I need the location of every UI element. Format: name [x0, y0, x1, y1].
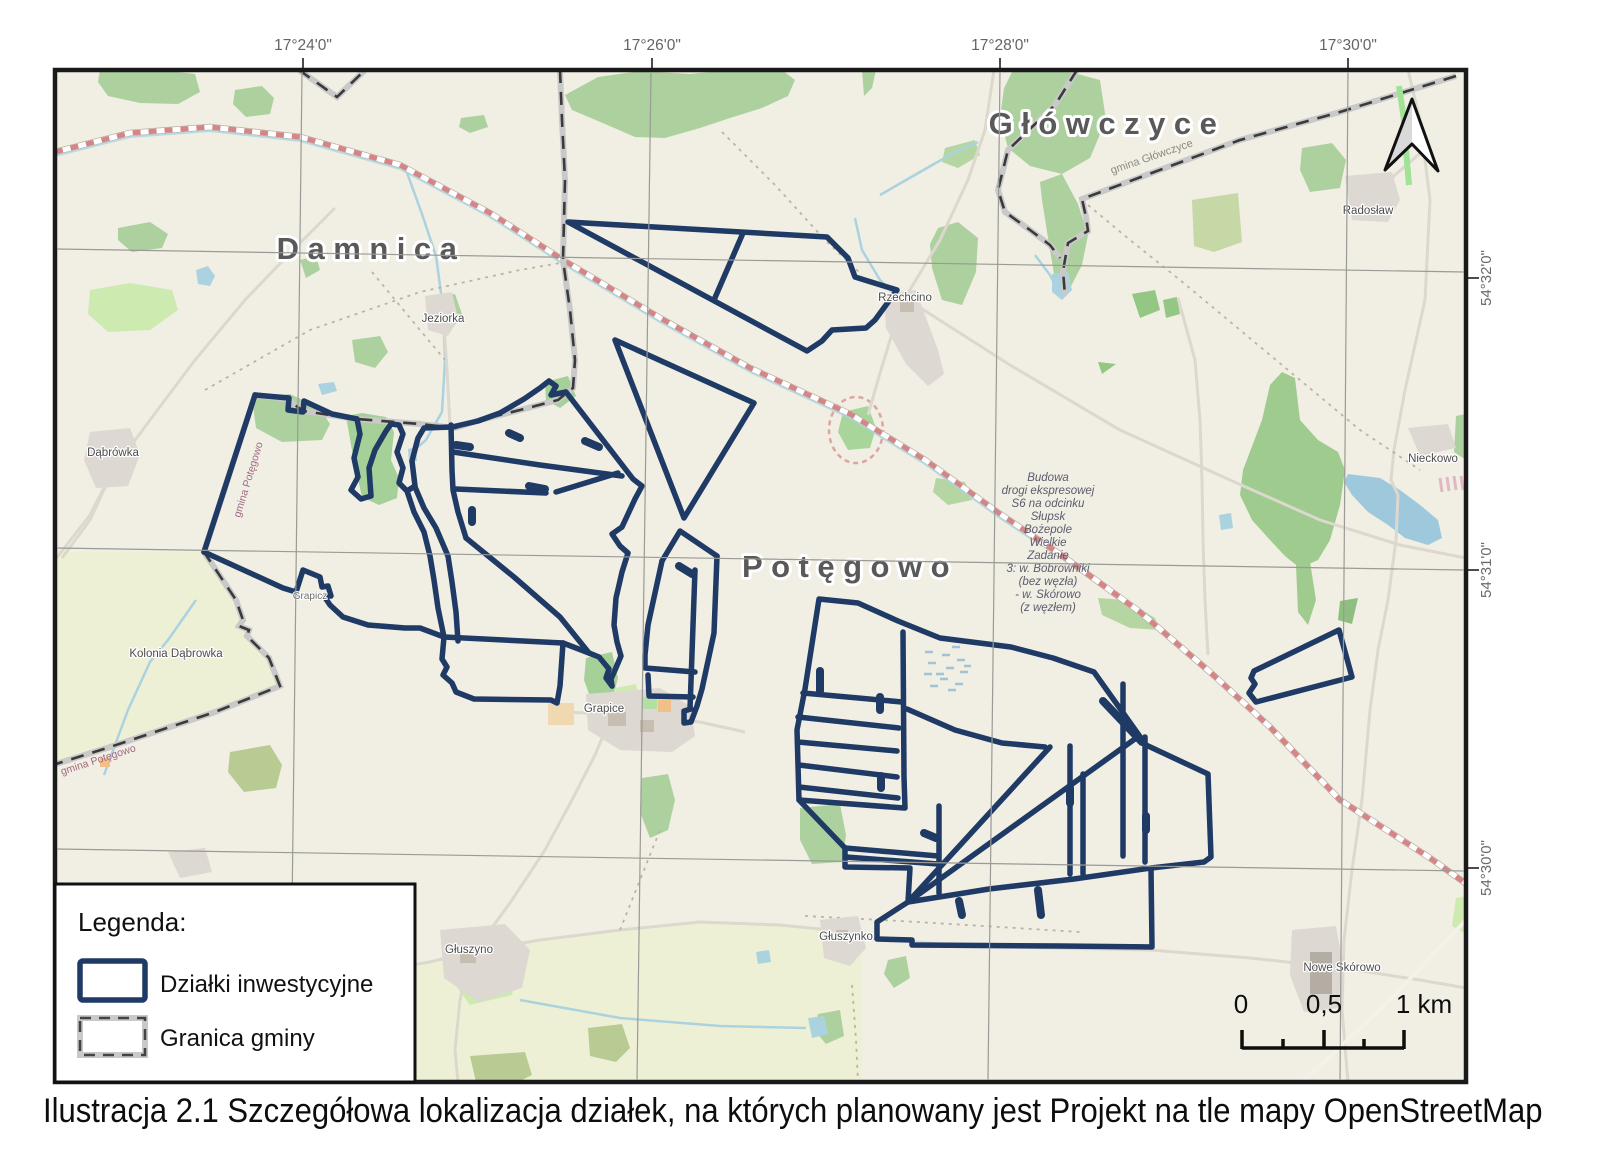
svg-text:Potęgowo: Potęgowo — [742, 549, 958, 584]
svg-text:3: w. Bobrowniki: 3: w. Bobrowniki — [1006, 563, 1090, 575]
svg-text:Nieckowo: Nieckowo — [1408, 453, 1458, 465]
svg-text:Głuszyno: Głuszyno — [445, 944, 493, 956]
svg-text:Budowa: Budowa — [1027, 472, 1069, 484]
svg-text:54°32'0": 54°32'0" — [1478, 250, 1495, 306]
svg-text:Kolonia Dąbrowka: Kolonia Dąbrowka — [129, 648, 223, 660]
svg-text:17°30'0": 17°30'0" — [1319, 37, 1377, 54]
svg-text:Zadanie: Zadanie — [1026, 550, 1069, 562]
svg-text:drogi ekspresowej: drogi ekspresowej — [1002, 485, 1095, 497]
svg-text:(bez węzła): (bez węzła) — [1019, 576, 1078, 588]
svg-text:Dąbrówka: Dąbrówka — [87, 447, 139, 459]
svg-text:54°30'0": 54°30'0" — [1478, 840, 1495, 896]
svg-text:Damnica: Damnica — [277, 231, 466, 266]
svg-text:Wielkie: Wielkie — [1030, 537, 1067, 549]
svg-text:17°28'0": 17°28'0" — [971, 37, 1029, 54]
svg-text:Grapice: Grapice — [584, 703, 624, 715]
svg-text:- w. Skórowo: - w. Skórowo — [1015, 589, 1081, 601]
svg-text:17°24'0": 17°24'0" — [274, 37, 332, 54]
svg-text:S6 na odcinku: S6 na odcinku — [1012, 498, 1085, 510]
svg-text:17°26'0": 17°26'0" — [623, 37, 681, 54]
svg-text:Radosław: Radosław — [1343, 205, 1394, 217]
svg-text:Granica gminy: Granica gminy — [160, 1025, 315, 1052]
svg-text:Bożepole: Bożepole — [1024, 524, 1072, 536]
svg-text:(z węzłem): (z węzłem) — [1020, 602, 1076, 614]
svg-text:0: 0 — [1234, 989, 1248, 1019]
svg-text:Legenda:: Legenda: — [78, 907, 186, 937]
svg-text:Rzechcino: Rzechcino — [878, 292, 932, 304]
svg-text:Jeziorka: Jeziorka — [422, 313, 465, 325]
svg-text:54°31'0": 54°31'0" — [1478, 542, 1495, 598]
svg-text:Słupsk: Słupsk — [1031, 511, 1067, 523]
svg-text:0,5: 0,5 — [1306, 989, 1342, 1019]
svg-text:Głuszynko: Głuszynko — [819, 931, 873, 943]
svg-text:Główczyce: Główczyce — [989, 106, 1226, 141]
svg-text:Działki inwestycyjne: Działki inwestycyjne — [160, 971, 373, 998]
svg-text:Nowe Skórowo: Nowe Skórowo — [1303, 962, 1380, 974]
svg-text:Grapicz: Grapicz — [293, 591, 327, 602]
svg-text:1 km: 1 km — [1396, 989, 1452, 1019]
